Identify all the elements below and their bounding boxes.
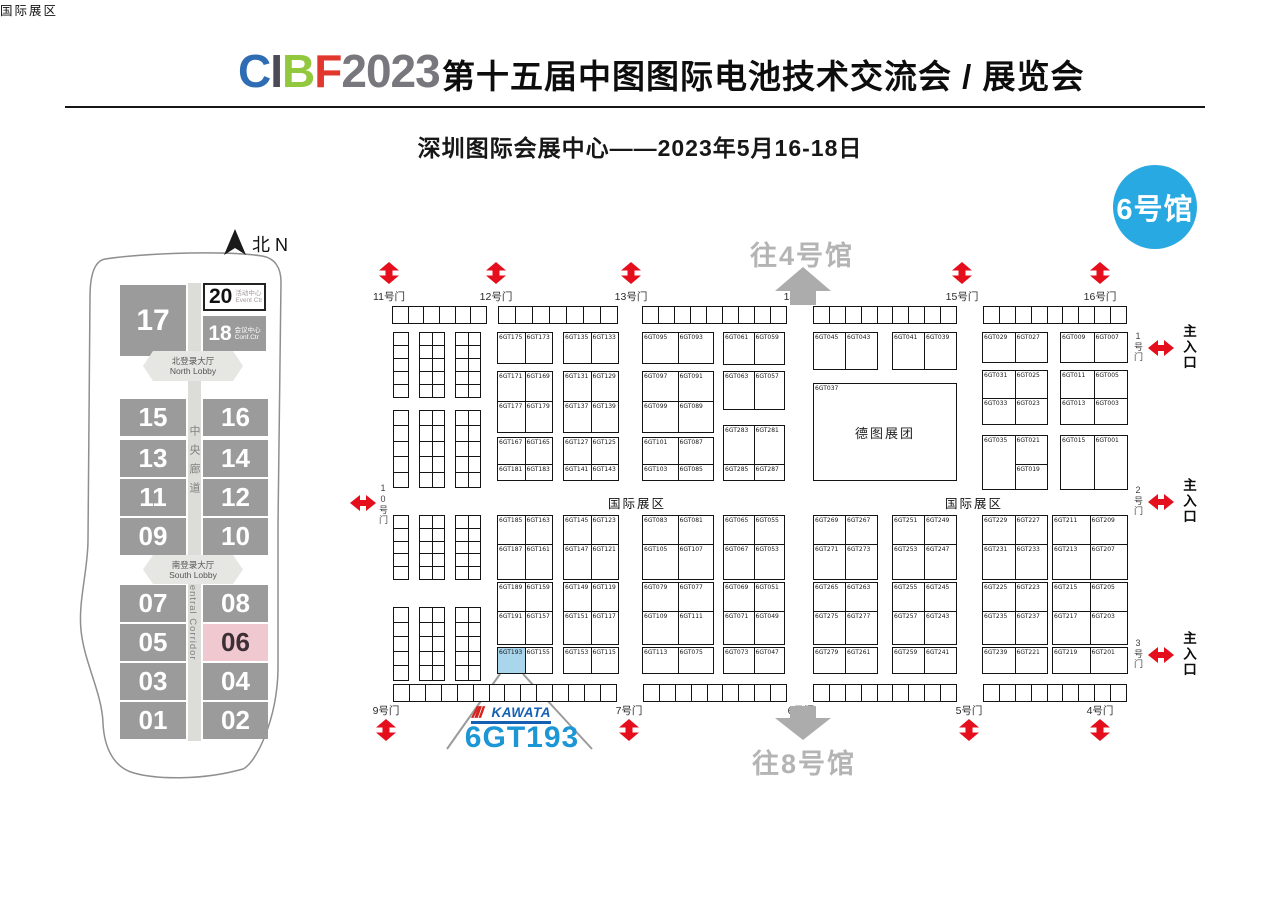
booth-6GT067[interactable]: 6GT067 (724, 544, 754, 579)
booth-number: 6GT113 (643, 648, 678, 656)
booth-6GT089[interactable]: 6GT089 (679, 401, 714, 432)
booth-6GT159[interactable]: 6GT159 (526, 583, 553, 611)
booth-cell-empty (846, 685, 861, 701)
booth-number: 6GT251 (893, 516, 924, 524)
booth-cell-empty (420, 358, 432, 371)
booth-block (393, 515, 409, 580)
booth-6GT127[interactable]: 6GT127 (564, 438, 591, 464)
intl-zone-label-left: 国际展区 (608, 493, 666, 512)
booth-cell-empty (505, 685, 520, 701)
booth-6GT007[interactable]: 6GT007 (1095, 333, 1128, 362)
booth-cell-empty (420, 528, 432, 541)
booth-number: 6GT193 (498, 648, 525, 656)
entrance-arrow-icon (619, 719, 639, 741)
booth-6GT273[interactable]: 6GT273 (846, 544, 877, 579)
booth-cell-empty (878, 685, 893, 701)
booth-cell-empty (394, 541, 408, 554)
booth-block (983, 306, 1127, 324)
booth-cell-empty (433, 371, 445, 384)
booth-block: 6GT2156GT2176GT2056GT203 (1052, 582, 1128, 645)
booth-6GT281[interactable]: 6GT281 (755, 426, 785, 464)
booth-6GT005[interactable]: 6GT005 (1095, 371, 1128, 398)
booth-6GT123[interactable]: 6GT123 (592, 516, 619, 544)
booth-number: 6GT085 (679, 465, 714, 473)
booth-cell-empty (456, 665, 468, 680)
entrance-arrow-icon (952, 262, 972, 284)
booth-cell-empty (456, 636, 468, 651)
booth-6GT039[interactable]: 6GT039 (925, 333, 956, 369)
booth-6GT093[interactable]: 6GT093 (679, 333, 714, 363)
booth-block: 6GT1856GT1876GT1636GT161 (497, 515, 553, 580)
booth-6GT255[interactable]: 6GT255 (893, 583, 924, 611)
booth-6GT075[interactable]: 6GT075 (679, 648, 714, 673)
booth-6GT059[interactable]: 6GT059 (755, 333, 785, 364)
booth-6GT079[interactable]: 6GT079 (643, 583, 678, 611)
booth-6GT179[interactable]: 6GT179 (526, 401, 553, 432)
booth-6GT269[interactable]: 6GT269 (814, 516, 845, 544)
booth-6GT057[interactable]: 6GT057 (755, 372, 785, 409)
booth-6GT019[interactable]: 6GT019 (1016, 464, 1048, 489)
booth-cell-empty (1063, 685, 1078, 701)
entrance-arrow-icon (959, 719, 979, 741)
booth-cell-empty (394, 566, 408, 579)
booth-6GT021[interactable]: 6GT021 (1016, 436, 1048, 464)
booth-number: 6GT049 (755, 612, 785, 620)
booth-6GT237[interactable]: 6GT237 (1016, 611, 1048, 644)
booth-6GT189[interactable]: 6GT189 (498, 583, 525, 611)
booth-number: 6GT015 (1061, 436, 1094, 444)
booth-6GT029[interactable]: 6GT029 (983, 333, 1015, 362)
booth-6GT107[interactable]: 6GT107 (679, 544, 714, 579)
booth-cell-empty (469, 441, 481, 456)
booth-block (455, 332, 481, 398)
booth-block: 6GT0096GT007 (1060, 332, 1128, 363)
booth-6GT065[interactable]: 6GT065 (724, 516, 754, 544)
booth-cell-empty (893, 307, 908, 323)
booth-6GT095[interactable]: 6GT095 (643, 333, 678, 363)
booth-6GT031[interactable]: 6GT031 (983, 371, 1015, 398)
booth-6GT103[interactable]: 6GT103 (643, 464, 678, 480)
booth-block: 6GT2256GT2356GT2236GT237 (982, 582, 1048, 645)
booth-6GT149[interactable]: 6GT149 (564, 583, 591, 611)
booth-6GT087[interactable]: 6GT087 (679, 438, 714, 464)
booth-cell-empty (941, 685, 956, 701)
booth-6GT257[interactable]: 6GT257 (893, 611, 924, 644)
booth-6GT023[interactable]: 6GT023 (1016, 398, 1048, 424)
booth-number: 6GT001 (1095, 436, 1128, 444)
booth-cell-empty (755, 307, 770, 323)
booth-cell-empty (433, 553, 445, 566)
booth-6GT161[interactable]: 6GT161 (526, 544, 553, 579)
booth-6GT235[interactable]: 6GT235 (983, 611, 1015, 644)
booth-6GT241[interactable]: 6GT241 (925, 648, 956, 673)
booth-block: 6GT2116GT2136GT2096GT207 (1052, 515, 1128, 580)
booth-cell-empty (420, 441, 432, 456)
booth-number: 6GT151 (564, 612, 591, 620)
booth-6GT111[interactable]: 6GT111 (679, 611, 714, 644)
booth-6GT001[interactable]: 6GT001 (1095, 436, 1128, 489)
booth-6GT109[interactable]: 6GT109 (643, 611, 678, 644)
booth-6GT025[interactable]: 6GT025 (1016, 371, 1048, 398)
booth-number: 6GT149 (564, 583, 591, 591)
booth-6GT259[interactable]: 6GT259 (893, 648, 924, 673)
booth-6GT015[interactable]: 6GT015 (1061, 436, 1094, 489)
booth-number: 6GT063 (724, 372, 754, 380)
booth-cell-empty (420, 425, 432, 440)
booth-6GT033[interactable]: 6GT033 (983, 398, 1015, 424)
booth-cell-empty (469, 371, 481, 384)
booth-6GT205[interactable]: 6GT205 (1091, 583, 1128, 611)
booth-number: 6GT255 (893, 583, 924, 591)
booth-6GT167[interactable]: 6GT167 (498, 438, 525, 464)
booth-6GT211[interactable]: 6GT211 (1053, 516, 1090, 544)
booth-6GT045[interactable]: 6GT045 (814, 333, 845, 369)
booth-6GT071[interactable]: 6GT071 (724, 611, 754, 644)
booth-6GT175[interactable]: 6GT175 (498, 333, 525, 363)
booth-cell-empty (601, 307, 617, 323)
booth-cell-empty (739, 307, 754, 323)
booth-6GT187[interactable]: 6GT187 (498, 544, 525, 579)
booth-number: 6GT191 (498, 612, 525, 620)
booth-6GT129[interactable]: 6GT129 (592, 372, 619, 401)
booth-number: 6GT011 (1061, 371, 1094, 379)
booth-6GT053[interactable]: 6GT053 (755, 544, 785, 579)
booth-cell-empty (442, 685, 457, 701)
booth-6GT115[interactable]: 6GT115 (592, 648, 619, 673)
booth-cell-empty (456, 622, 468, 637)
booth-number: 6GT059 (755, 333, 785, 341)
booth-cell-empty (456, 472, 468, 487)
booth-cell-empty (469, 411, 481, 425)
booth-6GT027[interactable]: 6GT027 (1016, 333, 1048, 362)
booth-number: 6GT145 (564, 516, 591, 524)
booth-number: 6GT213 (1053, 545, 1090, 553)
gate-label-4号门: 4号门 (1070, 703, 1130, 718)
booth-6GT003[interactable]: 6GT003 (1095, 398, 1128, 424)
booth-cell-empty (469, 566, 481, 579)
booth-6GT077[interactable]: 6GT077 (679, 583, 714, 611)
booth-6GT099[interactable]: 6GT099 (643, 401, 678, 432)
booth-6GT217[interactable]: 6GT217 (1053, 611, 1090, 644)
entrance-arrow-icon (1090, 262, 1110, 284)
booth-6GT193[interactable]: 6GT193 (498, 648, 525, 673)
booth-6GT191[interactable]: 6GT191 (498, 611, 525, 644)
booth-block (455, 410, 481, 488)
booth-6GT275[interactable]: 6GT275 (814, 611, 845, 644)
booth-6GT081[interactable]: 6GT081 (679, 516, 714, 544)
booth-number: 6GT071 (724, 612, 754, 620)
booth-block: 6GT0696GT0716GT0516GT049 (723, 582, 785, 645)
booth-6GT091[interactable]: 6GT091 (679, 372, 714, 401)
booth-6GT101[interactable]: 6GT101 (643, 438, 678, 464)
booth-6GT131[interactable]: 6GT131 (564, 372, 591, 401)
booth-number: 6GT081 (679, 516, 714, 524)
booth-cell-empty (424, 307, 439, 323)
booth-number: 6GT261 (846, 648, 877, 656)
booth-6GT035[interactable]: 6GT035 (983, 436, 1015, 489)
booth-number: 6GT083 (643, 516, 678, 524)
booth-number: 6GT183 (526, 465, 553, 473)
booth-6GT229[interactable]: 6GT229 (983, 516, 1015, 544)
booth-cell-empty (420, 384, 432, 397)
booth-cell-empty (456, 425, 468, 440)
booth-6GT169[interactable]: 6GT169 (526, 372, 553, 401)
booth-number: 6GT023 (1016, 399, 1048, 407)
booth-6GT105[interactable]: 6GT105 (643, 544, 678, 579)
booth-cell-empty (456, 516, 468, 528)
booth-6GT245[interactable]: 6GT245 (925, 583, 956, 611)
booth-6GT055[interactable]: 6GT055 (755, 516, 785, 544)
to-hall8-arrow-icon (775, 706, 831, 740)
booth-6GT287[interactable]: 6GT287 (755, 464, 785, 480)
booth-cell-empty (433, 384, 445, 397)
booth-block: 6GT0116GT0136GT0056GT003 (1060, 370, 1128, 425)
booth-6GT085[interactable]: 6GT085 (679, 464, 714, 480)
booth-6GT119[interactable]: 6GT119 (592, 583, 619, 611)
booth-block (983, 684, 1127, 702)
booth-number: 6GT027 (1016, 333, 1048, 341)
booth-6GT243[interactable]: 6GT243 (925, 611, 956, 644)
booth-cell-empty (1016, 685, 1031, 701)
booth-6GT213[interactable]: 6GT213 (1053, 544, 1090, 579)
highlighted-booth-label: 6GT193 (462, 721, 582, 755)
booth-cell-empty (708, 685, 723, 701)
booth-6GT231[interactable]: 6GT231 (983, 544, 1015, 579)
booth-6GT209[interactable]: 6GT209 (1091, 516, 1128, 544)
booth-cell-empty (862, 685, 877, 701)
booth-number: 6GT243 (925, 612, 956, 620)
booth-cell-empty (433, 358, 445, 371)
booth-number: 6GT135 (564, 333, 591, 341)
booth-cell-empty (771, 307, 786, 323)
booth-cell-empty (456, 307, 471, 323)
booth-number: 6GT125 (592, 438, 619, 446)
booth-6GT151[interactable]: 6GT151 (564, 611, 591, 644)
booth-6GT279[interactable]: 6GT279 (814, 648, 845, 673)
booth-number: 6GT273 (846, 545, 877, 553)
booth-block: 6GT0656GT0676GT0556GT053 (723, 515, 785, 580)
booth-number: 6GT263 (846, 583, 877, 591)
booth-number: 6GT055 (755, 516, 785, 524)
booth-6GT249[interactable]: 6GT249 (925, 516, 956, 544)
booth-block: 6GT1456GT1476GT1236GT121 (563, 515, 619, 580)
booth-number: 6GT057 (755, 372, 785, 380)
booth-6GT043[interactable]: 6GT043 (846, 333, 877, 369)
booth-6GT223[interactable]: 6GT223 (1016, 583, 1048, 611)
booth-cell-empty (394, 384, 408, 397)
booth-6GT063[interactable]: 6GT063 (724, 372, 754, 409)
booth-6GT215[interactable]: 6GT215 (1053, 583, 1090, 611)
booth-6GT201[interactable]: 6GT201 (1091, 648, 1128, 673)
intl-zone-label-right: 国际展区 (945, 493, 1003, 512)
booth-cell-empty (707, 307, 722, 323)
booth-6GT013[interactable]: 6GT013 (1061, 398, 1094, 424)
booth-number: 6GT229 (983, 516, 1015, 524)
booth-number: 6GT241 (925, 648, 956, 656)
booth-cell-empty (420, 456, 432, 471)
booth-number: 6GT117 (592, 612, 619, 620)
booth-cell-empty (469, 541, 481, 554)
booth-cell-empty (433, 622, 445, 637)
booth-cell-empty (456, 566, 468, 579)
booth-block: 6GT1536GT115 (563, 647, 619, 674)
booth-6GT049[interactable]: 6GT049 (755, 611, 785, 644)
booth-cell-empty (469, 651, 481, 666)
booth-cell-empty (469, 425, 481, 440)
booth-cell-empty (420, 622, 432, 637)
booth-6GT051[interactable]: 6GT051 (755, 583, 785, 611)
booth-6GT247[interactable]: 6GT247 (925, 544, 956, 579)
booth-number: 6GT231 (983, 545, 1015, 553)
booth-6GT207[interactable]: 6GT207 (1091, 544, 1128, 579)
booth-block (419, 332, 445, 398)
booth-6GT283[interactable]: 6GT283 (724, 426, 754, 464)
booth-block (419, 607, 445, 681)
booth-6GT061[interactable]: 6GT061 (724, 333, 754, 364)
booth-6GT171[interactable]: 6GT171 (498, 372, 525, 401)
to-hall8-label: 往8号馆 (752, 742, 856, 781)
booth-cell-empty (644, 685, 659, 701)
booth-6GT239[interactable]: 6GT239 (983, 648, 1015, 673)
booth-6GT047[interactable]: 6GT047 (755, 648, 785, 673)
booth-6GT083[interactable]: 6GT083 (643, 516, 678, 544)
booth-block (813, 306, 957, 324)
booth-6GT177[interactable]: 6GT177 (498, 401, 525, 432)
booth-number: 6GT143 (592, 465, 619, 473)
booth-6GT261[interactable]: 6GT261 (846, 648, 877, 673)
gate-label-1号门: 1号门 (1132, 331, 1145, 362)
booth-number: 6GT103 (643, 465, 678, 473)
booth-number: 6GT223 (1016, 583, 1048, 591)
booth-cell-empty (456, 608, 468, 622)
booth-6GT253[interactable]: 6GT253 (893, 544, 924, 579)
booth-6GT139[interactable]: 6GT139 (592, 401, 619, 432)
booth-cell-empty (490, 685, 505, 701)
booth-cell-empty (567, 307, 583, 323)
booth-6GT069[interactable]: 6GT069 (724, 583, 754, 611)
booth-number: 6GT155 (526, 648, 553, 656)
entrance-arrow-icon (1090, 719, 1110, 741)
booth-number: 6GT061 (724, 333, 754, 341)
booth-number: 6GT203 (1091, 612, 1128, 620)
booth-6GT181[interactable]: 6GT181 (498, 464, 525, 480)
booth-block: 6GT2656GT2756GT2636GT277 (813, 582, 878, 645)
booth-6GT155[interactable]: 6GT155 (526, 648, 553, 673)
booth-6GT141[interactable]: 6GT141 (564, 464, 591, 480)
booth-6GT227[interactable]: 6GT227 (1016, 516, 1048, 544)
booth-6GT137[interactable]: 6GT137 (564, 401, 591, 432)
booth-cell-empty (1111, 307, 1126, 323)
booth-6GT251[interactable]: 6GT251 (893, 516, 924, 544)
booth-6GT233[interactable]: 6GT233 (1016, 544, 1048, 579)
booth-block (455, 515, 481, 580)
booth-cell-empty (456, 345, 468, 358)
booth-number: 6GT159 (526, 583, 553, 591)
booth-cell-empty (675, 307, 690, 323)
gate-label-7号门: 7号门 (599, 703, 659, 718)
booth-cell-empty (660, 685, 675, 701)
booth-number: 6GT075 (679, 648, 714, 656)
booth-cell-empty (846, 307, 861, 323)
booth-6GT221[interactable]: 6GT221 (1016, 648, 1048, 673)
booth-6GT011[interactable]: 6GT011 (1061, 371, 1094, 398)
booth-6GT173[interactable]: 6GT173 (526, 333, 553, 363)
booth-number: 6GT281 (755, 426, 785, 434)
booth-number: 6GT167 (498, 438, 525, 446)
booth-6GT165[interactable]: 6GT165 (526, 438, 553, 464)
booth-number: 6GT109 (643, 612, 678, 620)
booth-cell-empty (394, 608, 408, 622)
booth-6GT113[interactable]: 6GT113 (643, 648, 678, 673)
booth-6GT147[interactable]: 6GT147 (564, 544, 591, 579)
booth-block: 6GT0636GT057 (723, 371, 785, 410)
booth-6GT277[interactable]: 6GT277 (846, 611, 877, 644)
booth-6GT263[interactable]: 6GT263 (846, 583, 877, 611)
booth-cell-empty (433, 472, 445, 487)
booth-6GT157[interactable]: 6GT157 (526, 611, 553, 644)
booth-6GT097[interactable]: 6GT097 (643, 372, 678, 401)
booth-6GT009[interactable]: 6GT009 (1061, 333, 1094, 362)
booth-cell-empty (499, 307, 515, 323)
booth-6GT163[interactable]: 6GT163 (526, 516, 553, 544)
booth-6GT225[interactable]: 6GT225 (983, 583, 1015, 611)
booth-cell-empty (394, 622, 408, 637)
booth-6GT203[interactable]: 6GT203 (1091, 611, 1128, 644)
booth-cell-empty (909, 685, 924, 701)
booth-6GT117[interactable]: 6GT117 (592, 611, 619, 644)
booth-6GT121[interactable]: 6GT121 (592, 544, 619, 579)
booth-cell-empty (676, 685, 691, 701)
booth-6GT267[interactable]: 6GT267 (846, 516, 877, 544)
booth-number: 6GT235 (983, 612, 1015, 620)
booth-cell-empty (553, 685, 568, 701)
booth-cell-empty (420, 541, 432, 554)
booth-cell-empty (893, 685, 908, 701)
booth-6GT145[interactable]: 6GT145 (564, 516, 591, 544)
booth-6GT271[interactable]: 6GT271 (814, 544, 845, 579)
booth-6GT183[interactable]: 6GT183 (526, 464, 553, 480)
booth-6GT041[interactable]: 6GT041 (893, 333, 924, 369)
german-pavilion-label: 德图展团 (814, 384, 956, 480)
booth-number: 6GT207 (1091, 545, 1128, 553)
booth-6GT073[interactable]: 6GT073 (724, 648, 754, 673)
booth-number: 6GT247 (925, 545, 956, 553)
booth-cell-empty (433, 608, 445, 622)
booth-cell-empty (456, 651, 468, 666)
booth-6GT265[interactable]: 6GT265 (814, 583, 845, 611)
booth-6GT185[interactable]: 6GT185 (498, 516, 525, 544)
booth-block (498, 306, 618, 324)
booth-cell-empty (456, 358, 468, 371)
booth-cell-empty (723, 307, 738, 323)
booth-6GT143[interactable]: 6GT143 (592, 464, 619, 480)
booth-number: 6GT219 (1053, 648, 1090, 656)
booth-6GT133[interactable]: 6GT133 (592, 333, 619, 363)
booth-cell-empty (739, 685, 754, 701)
booth-6GT285[interactable]: 6GT285 (724, 464, 754, 480)
booth-6GT219[interactable]: 6GT219 (1053, 648, 1090, 673)
booth-cell-empty (601, 685, 616, 701)
booth-number: 6GT259 (893, 648, 924, 656)
booth-6GT125[interactable]: 6GT125 (592, 438, 619, 464)
booth-6GT153[interactable]: 6GT153 (564, 648, 591, 673)
booth-cell-empty (420, 345, 432, 358)
booth-number: 6GT069 (724, 583, 754, 591)
booth-number: 6GT137 (564, 402, 591, 410)
booth-cell-empty (456, 371, 468, 384)
booth-6GT135[interactable]: 6GT135 (564, 333, 591, 363)
booth-cell-empty (394, 553, 408, 566)
